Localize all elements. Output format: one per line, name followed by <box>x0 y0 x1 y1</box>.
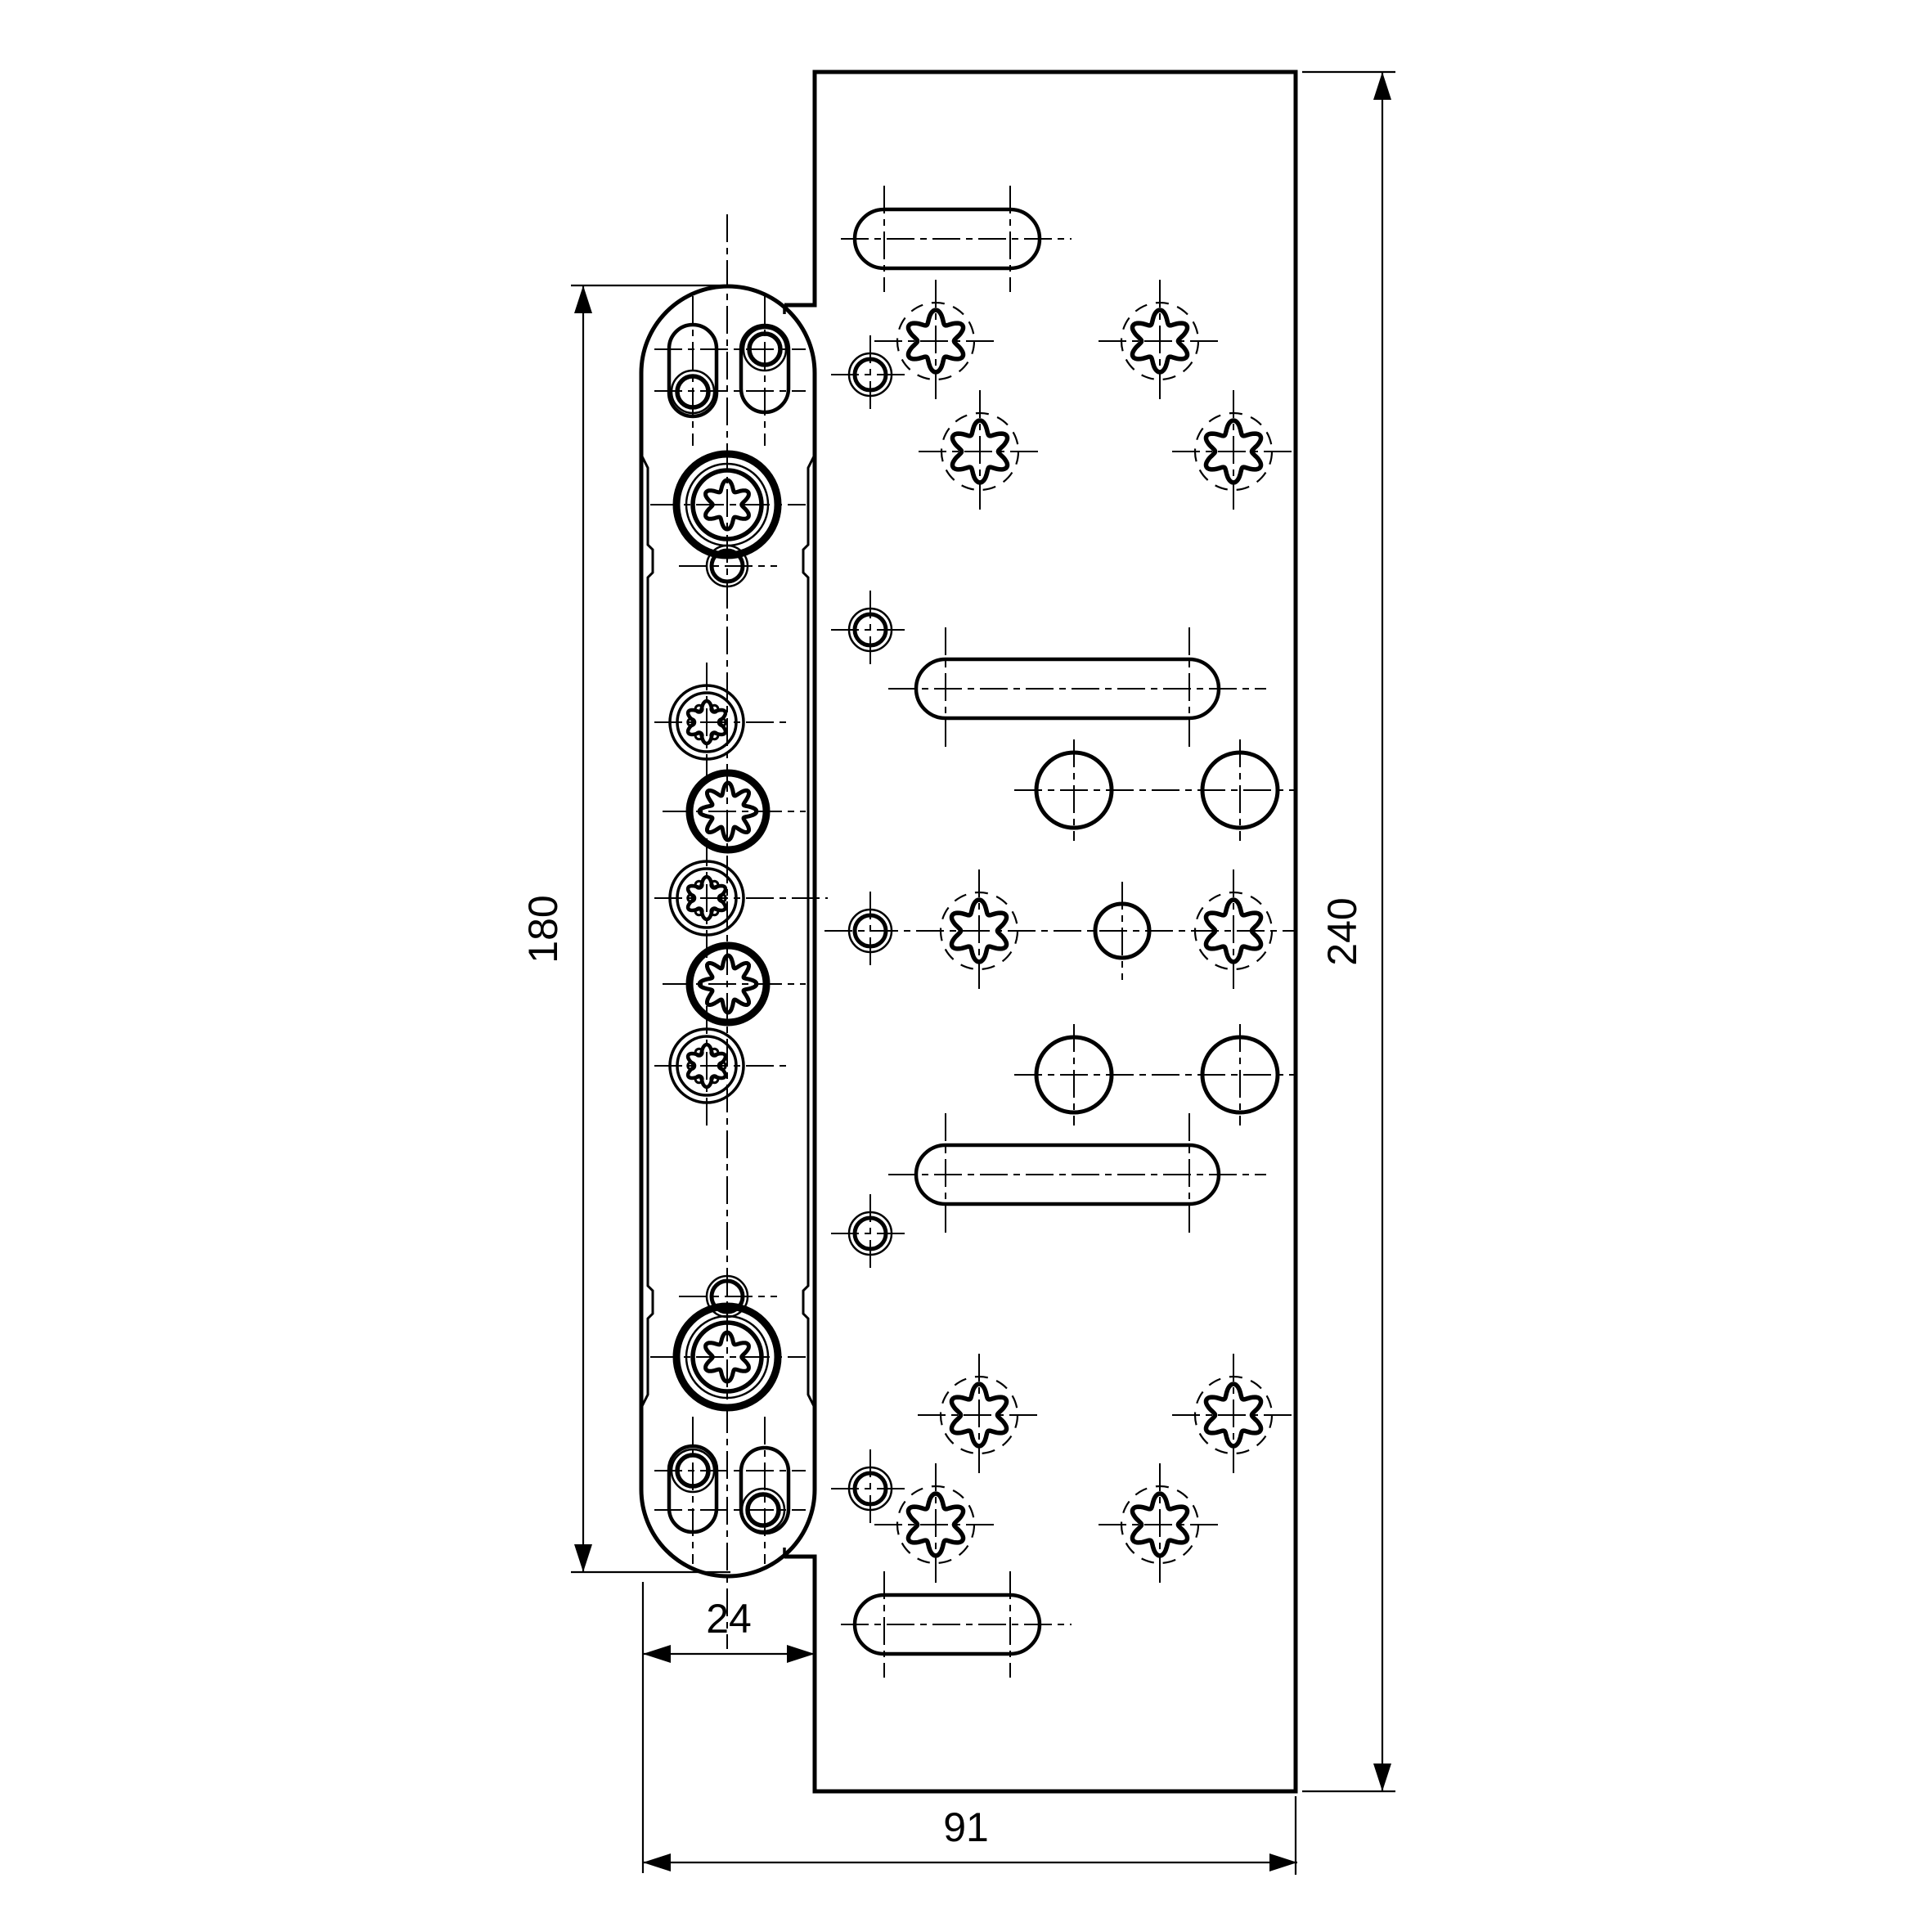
dim-label-leaf-height: 180 <box>520 895 566 963</box>
dimension-arrowhead <box>787 1645 815 1663</box>
dimension-arrowhead <box>1269 1853 1297 1871</box>
dimension-arrowhead <box>574 285 592 313</box>
dimension-arrowhead <box>574 1544 592 1572</box>
dimension-arrowhead <box>643 1645 671 1663</box>
dim-label-leaf-width: 24 <box>706 1596 752 1642</box>
drawing-canvas: 1802402491 <box>0 0 1932 1932</box>
dimension-arrowhead <box>1373 1764 1391 1791</box>
dimension-arrowhead <box>643 1853 671 1871</box>
technical-drawing: 1802402491 <box>0 0 1932 1932</box>
dimension-arrowhead <box>1373 72 1391 100</box>
dim-label-plate-height: 240 <box>1319 897 1365 965</box>
dim-label-total-width: 91 <box>943 1804 989 1850</box>
